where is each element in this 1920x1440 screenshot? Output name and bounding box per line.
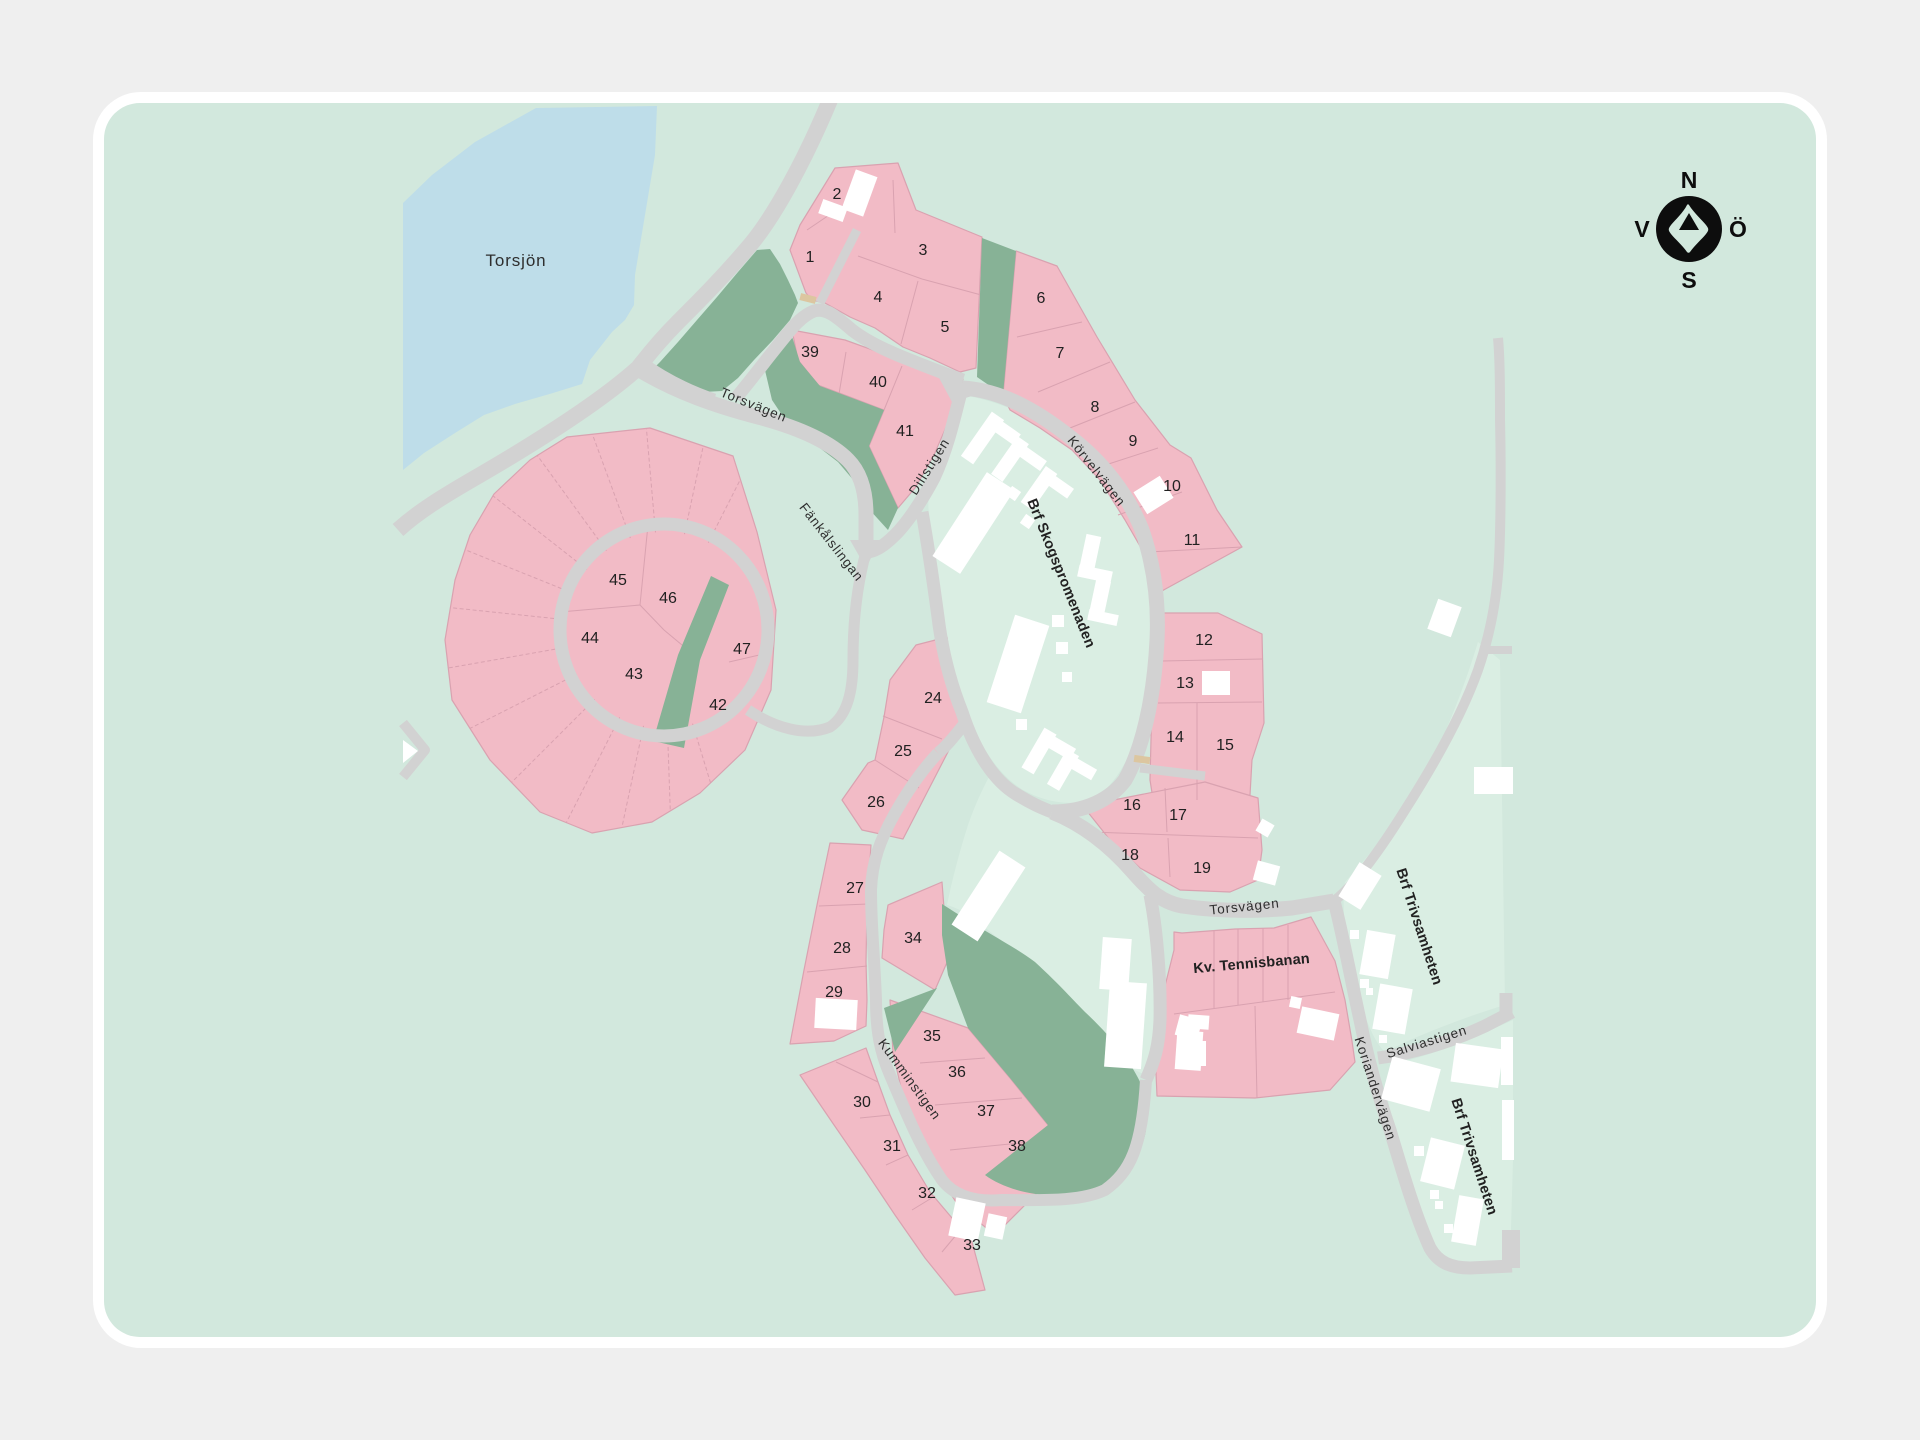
svg-text:8: 8 xyxy=(1091,399,1100,416)
svg-text:26: 26 xyxy=(867,794,885,811)
svg-text:27: 27 xyxy=(846,880,864,897)
svg-text:45: 45 xyxy=(609,572,627,589)
svg-text:32: 32 xyxy=(918,1185,936,1202)
svg-text:N: N xyxy=(1681,167,1698,193)
svg-text:29: 29 xyxy=(825,984,843,1001)
svg-text:38: 38 xyxy=(1008,1138,1026,1155)
svg-text:28: 28 xyxy=(833,940,851,957)
svg-text:31: 31 xyxy=(883,1138,901,1155)
svg-text:30: 30 xyxy=(853,1094,871,1111)
svg-text:10: 10 xyxy=(1163,478,1181,495)
svg-text:33: 33 xyxy=(963,1237,981,1254)
svg-text:41: 41 xyxy=(896,423,914,440)
svg-text:4: 4 xyxy=(874,289,883,306)
svg-text:24: 24 xyxy=(924,690,942,707)
svg-text:46: 46 xyxy=(659,590,677,607)
svg-text:12: 12 xyxy=(1195,632,1213,649)
svg-text:44: 44 xyxy=(581,630,599,647)
svg-text:S: S xyxy=(1681,267,1696,293)
svg-text:40: 40 xyxy=(869,374,887,391)
svg-text:16: 16 xyxy=(1123,797,1141,814)
svg-text:5: 5 xyxy=(941,319,950,336)
svg-text:17: 17 xyxy=(1169,807,1187,824)
svg-text:1: 1 xyxy=(806,249,815,266)
svg-text:Torsjön: Torsjön xyxy=(485,251,546,270)
svg-text:47: 47 xyxy=(733,641,751,658)
svg-text:14: 14 xyxy=(1166,729,1184,746)
svg-text:11: 11 xyxy=(1184,532,1201,549)
svg-text:15: 15 xyxy=(1216,737,1234,754)
svg-text:37: 37 xyxy=(977,1103,995,1120)
svg-text:7: 7 xyxy=(1056,345,1065,362)
svg-text:2: 2 xyxy=(833,186,842,203)
svg-text:3: 3 xyxy=(919,242,928,259)
svg-text:13: 13 xyxy=(1176,675,1194,692)
svg-text:Ö: Ö xyxy=(1729,216,1747,242)
svg-text:25: 25 xyxy=(894,743,912,760)
svg-text:9: 9 xyxy=(1129,433,1138,450)
svg-text:35: 35 xyxy=(923,1028,941,1045)
svg-text:34: 34 xyxy=(904,930,922,947)
svg-text:19: 19 xyxy=(1193,860,1211,877)
svg-text:V: V xyxy=(1634,216,1650,242)
svg-text:42: 42 xyxy=(709,697,727,714)
svg-text:18: 18 xyxy=(1121,847,1139,864)
svg-text:6: 6 xyxy=(1037,290,1046,307)
svg-text:39: 39 xyxy=(801,344,819,361)
svg-text:43: 43 xyxy=(625,666,643,683)
svg-text:36: 36 xyxy=(948,1064,966,1081)
